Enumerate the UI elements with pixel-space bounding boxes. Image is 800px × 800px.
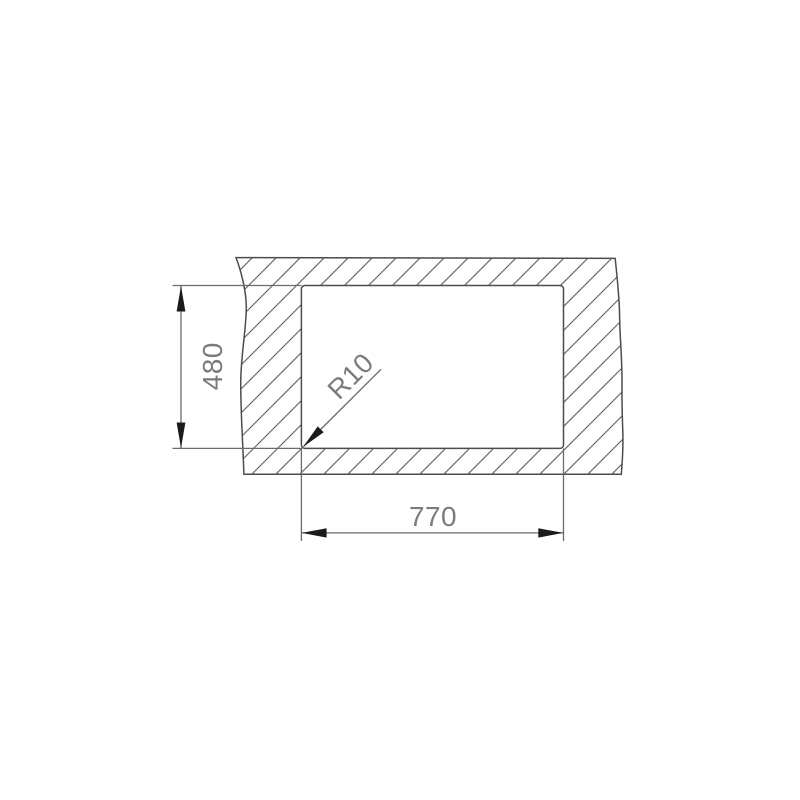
svg-text:480: 480	[197, 342, 228, 390]
svg-text:R10: R10	[321, 347, 379, 405]
svg-text:770: 770	[409, 501, 457, 532]
